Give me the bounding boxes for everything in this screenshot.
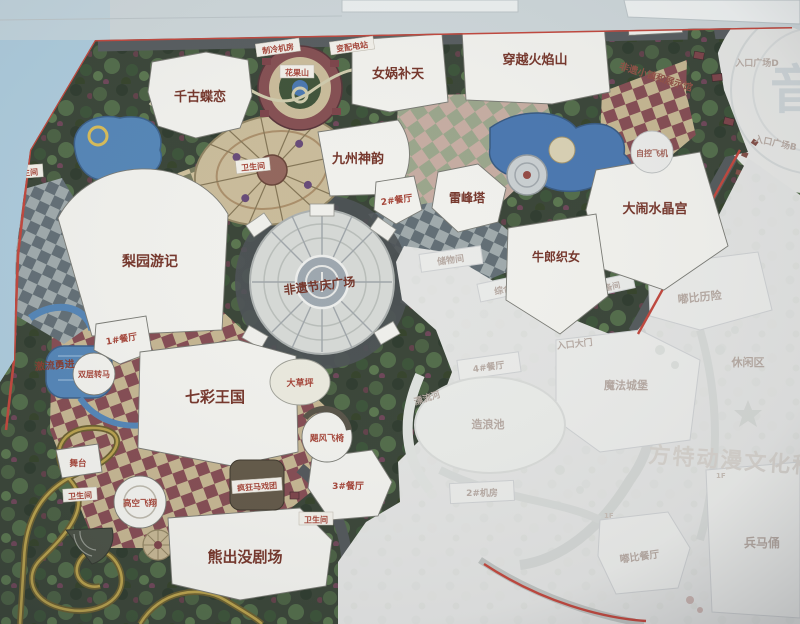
masterplan-map: 音 方特动漫文化科技 储物间 综合服务楼 设备间 入口大门 嘟比历险 魔法城堡 … bbox=[0, 0, 800, 624]
park-map-photo: 音 方特动漫文化科技 储物间 综合服务楼 设备间 入口大门 嘟比历险 魔法城堡 … bbox=[0, 0, 800, 624]
photo-vignette bbox=[0, 0, 800, 624]
